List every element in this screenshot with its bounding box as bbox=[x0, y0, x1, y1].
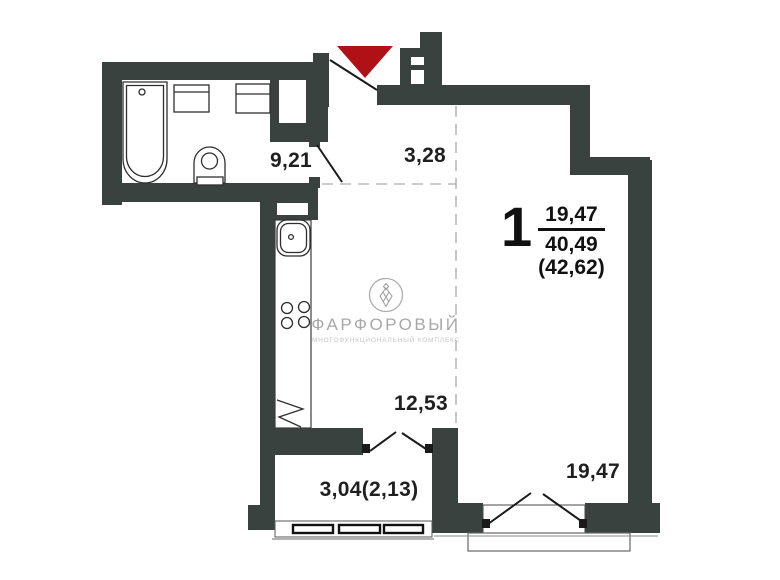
sink-icon bbox=[277, 220, 310, 256]
area-label-corridor: 3,28 bbox=[404, 144, 446, 168]
balcony-door bbox=[370, 432, 429, 451]
logo-name: ФАРФОРОВЫЙ bbox=[306, 315, 466, 335]
entrance-arrow-icon bbox=[337, 46, 393, 78]
wall-balcony-living bbox=[432, 428, 458, 533]
bathtub-icon bbox=[123, 82, 167, 183]
wall-entrance-tower bbox=[420, 32, 442, 50]
wall-right-step-vertical bbox=[570, 93, 590, 175]
logo-tagline: МНОГОФУНКЦИОНАЛЬНЫЙ КОМПЛЕКС bbox=[306, 337, 466, 344]
area-label-balcony: 3,04(2,13) bbox=[320, 478, 419, 502]
wall-window-right bbox=[585, 503, 660, 533]
porcelain-mark-icon bbox=[368, 277, 404, 313]
floor-plan: 9,21 3,28 12,53 3,04(2,13) 19,47 1 19,47… bbox=[0, 0, 780, 580]
developer-logo: ФАРФОРОВЫЙ МНОГОФУНКЦИОНАЛЬНЫЙ КОМПЛЕКС bbox=[306, 277, 466, 344]
toilet-icon bbox=[194, 147, 225, 185]
total-area-value: 40,49 bbox=[538, 231, 605, 256]
living-room-window-swing bbox=[488, 493, 584, 524]
apartment-summary: 1 19,47 40,49 (42,62) bbox=[501, 203, 605, 279]
bathroom-door-swing bbox=[317, 145, 342, 182]
wall-kitchen-left bbox=[260, 198, 275, 528]
exterior-ledge bbox=[468, 533, 630, 551]
column-notch-1 bbox=[411, 57, 424, 65]
entrance-door-swing bbox=[330, 60, 377, 90]
door-jamb-window-left bbox=[482, 519, 490, 528]
counter-break-line bbox=[277, 400, 303, 427]
living-room-window bbox=[483, 505, 585, 533]
column-notch-2 bbox=[411, 70, 424, 84]
wall-entrance-top bbox=[377, 85, 590, 105]
wall-kitchen-balcony bbox=[275, 428, 363, 455]
wall-right-outer bbox=[628, 160, 652, 503]
vent-kitchen bbox=[277, 203, 308, 215]
area-label-kitchen-living: 12,53 bbox=[394, 392, 448, 416]
balcony-glazing bbox=[275, 521, 432, 537]
door-jamb-bath-bottom bbox=[309, 177, 320, 188]
living-area-value: 19,47 bbox=[538, 203, 605, 231]
door-jamb-balcony-left bbox=[362, 444, 370, 453]
wall-balcony-living-foot bbox=[458, 503, 483, 533]
cabinet-icon bbox=[236, 84, 270, 113]
rooms-count: 1 bbox=[501, 203, 530, 251]
washing-machine-icon bbox=[174, 85, 209, 112]
area-with-balcony-value: (42,62) bbox=[538, 256, 605, 279]
shaft-bathroom bbox=[279, 80, 306, 123]
area-label-hallway: 9,21 bbox=[270, 149, 312, 173]
area-label-room: 19,47 bbox=[566, 460, 620, 484]
door-jamb-bath-top bbox=[309, 136, 320, 147]
wall-balcony-left-foot bbox=[248, 505, 275, 530]
